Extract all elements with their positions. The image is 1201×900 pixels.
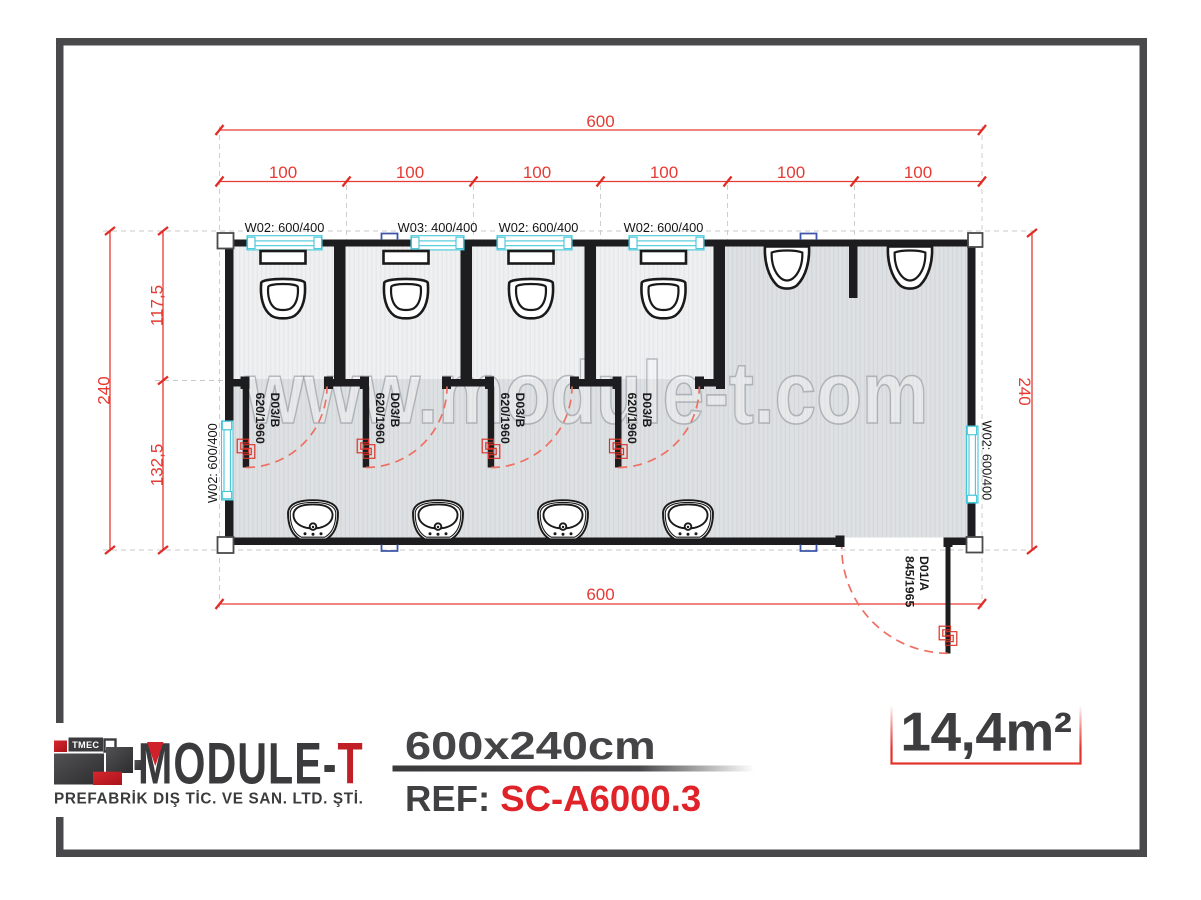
svg-text:TMEC: TMEC [72,740,99,750]
svg-text:D03/B: D03/B [513,393,527,428]
svg-text:D03/B: D03/B [268,393,282,428]
svg-text:132,5: 132,5 [148,444,167,487]
svg-text:D01/A: D01/A [917,556,931,591]
svg-text:100: 100 [269,163,297,182]
svg-text:600: 600 [586,112,614,131]
svg-text:D03/B: D03/B [388,393,402,428]
svg-text:600: 600 [586,585,614,604]
svg-text:100: 100 [777,163,805,182]
svg-text:W02: 600/400: W02: 600/400 [499,220,579,235]
svg-text:MODULE-T: MODULE-T [138,730,364,796]
svg-text:620/1960: 620/1960 [373,393,387,444]
svg-text:240: 240 [1015,377,1034,405]
svg-text:100: 100 [650,163,678,182]
svg-text:W02: 600/400: W02: 600/400 [624,220,704,235]
svg-text:14,4m²: 14,4m² [900,701,1071,763]
svg-text:845/1965: 845/1965 [903,556,917,607]
svg-text:100: 100 [396,163,424,182]
svg-text:600x240cm: 600x240cm [405,725,656,768]
svg-text:117,5: 117,5 [148,285,167,326]
svg-text:100: 100 [523,163,551,182]
svg-text:620/1960: 620/1960 [625,393,639,444]
svg-text:W03: 400/400: W03: 400/400 [398,220,478,235]
svg-text:W02: 600/400: W02: 600/400 [245,220,325,235]
svg-text:W02: 600/400: W02: 600/400 [980,421,995,501]
svg-text:PREFABRİK DIŞ TİC. VE SAN. LTD: PREFABRİK DIŞ TİC. VE SAN. LTD. ŞTİ. [54,791,364,808]
svg-text:620/1960: 620/1960 [498,393,512,444]
svg-text:100: 100 [904,163,932,182]
svg-text:REF: SC-A6000.3: REF: SC-A6000.3 [405,778,701,819]
svg-text:620/1960: 620/1960 [253,393,267,444]
svg-text:240: 240 [95,376,114,404]
svg-text:W02: 600/400: W02: 600/400 [205,423,220,503]
svg-text:D03/B: D03/B [640,393,654,428]
